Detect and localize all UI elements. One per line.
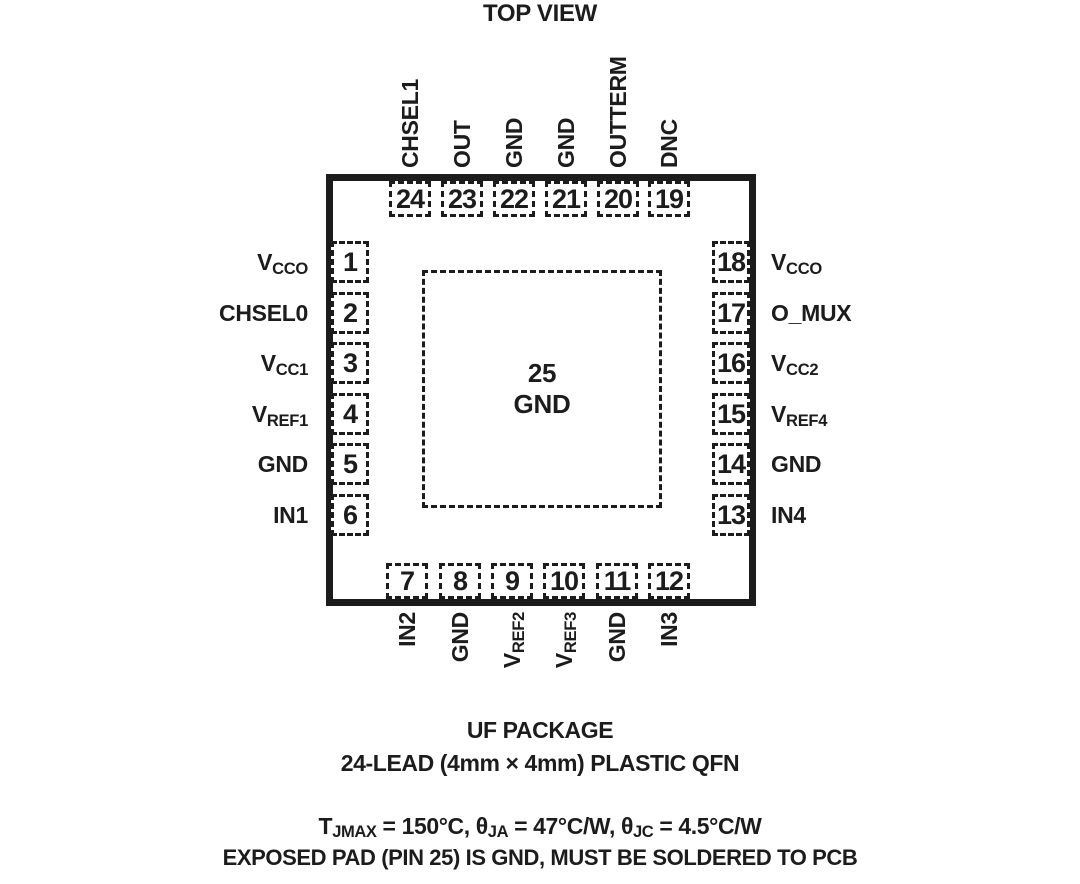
pin-23-box: 23: [441, 181, 483, 217]
pin-16-number: 16: [717, 348, 745, 379]
pin-12-number: 12: [655, 566, 683, 597]
pin-13-number: 13: [717, 500, 745, 531]
pin-22-label: GND: [501, 118, 527, 168]
exposed-pad-note: EXPOSED PAD (PIN 25) IS GND, MUST BE SOL…: [0, 845, 1080, 871]
pin-24-box: 24: [389, 181, 431, 217]
pin-9-box: 9: [491, 563, 533, 599]
pin-8-box: 8: [439, 563, 481, 599]
pin-13-box: 13: [712, 494, 750, 536]
pin-21-box: 21: [545, 181, 587, 217]
pin-24-number: 24: [396, 184, 424, 215]
pin-1-number: 1: [343, 247, 357, 278]
pin-14-box: 14: [712, 443, 750, 485]
top-view-label: TOP VIEW: [0, 0, 1080, 28]
pin-24-label: CHSEL1: [397, 79, 423, 168]
pin-11-number: 11: [604, 566, 631, 597]
pin-5-number: 5: [343, 449, 357, 480]
pin-4-number: 4: [343, 399, 357, 430]
pin-17-label: O_MUX: [771, 300, 851, 326]
package-name: UF PACKAGE: [0, 717, 1080, 744]
exposed-pad-number: 25: [528, 358, 556, 389]
pin-18-box: 18: [712, 241, 750, 283]
pin-20-number: 20: [604, 184, 632, 215]
pin-2-number: 2: [343, 298, 357, 329]
pin-6-label: IN1: [273, 502, 308, 528]
pin-16-label: VCC2: [771, 350, 818, 376]
pin-10-number: 10: [550, 566, 578, 597]
pin-2-label: CHSEL0: [219, 300, 308, 326]
pin-12-box: 12: [648, 563, 690, 599]
pin-12-label: IN3: [656, 612, 682, 647]
pin-4-box: 4: [331, 393, 369, 435]
pin-18-label: VCCO: [771, 249, 822, 275]
pin-6-number: 6: [343, 500, 357, 531]
pin-2-box: 2: [331, 292, 369, 334]
pin-23-number: 23: [448, 184, 476, 215]
pin-10-box: 10: [543, 563, 585, 599]
pin-15-box: 15: [712, 393, 750, 435]
pin-13-label: IN4: [771, 502, 806, 528]
pin-9-label: VREF2: [499, 612, 525, 668]
pin-7-number: 7: [400, 566, 414, 597]
pin-4-label: VREF1: [252, 401, 308, 427]
pin-17-box: 17: [712, 292, 750, 334]
pin-23-label: OUT: [449, 120, 475, 168]
qfn-pinout-diagram: TOP VIEW 25 GND 24 23 22 21 20 19 7 8 9 …: [0, 0, 1080, 884]
pin-6-box: 6: [331, 494, 369, 536]
exposed-pad: 25 GND: [422, 270, 662, 508]
pin-3-box: 3: [331, 342, 369, 384]
pin-11-label: GND: [604, 612, 630, 662]
pin-20-box: 20: [597, 181, 639, 217]
pin-1-box: 1: [331, 241, 369, 283]
pin-1-label: VCCO: [257, 249, 308, 275]
pin-7-box: 7: [386, 563, 428, 599]
pin-21-label: GND: [553, 118, 579, 168]
pin-8-label: GND: [447, 612, 473, 662]
pin-5-label: GND: [258, 451, 308, 477]
pin-15-label: VREF4: [771, 401, 827, 427]
pin-3-label: VCC1: [261, 350, 308, 376]
pin-3-number: 3: [343, 348, 357, 379]
thermal-specs: TJMAX = 150°C, θJA = 47°C/W, θJC = 4.5°C…: [0, 813, 1080, 840]
pin-16-box: 16: [712, 342, 750, 384]
pin-18-number: 18: [717, 247, 745, 278]
pin-5-box: 5: [331, 443, 369, 485]
pin-19-number: 19: [655, 184, 683, 215]
pin-19-box: 19: [648, 181, 690, 217]
pin-22-box: 22: [493, 181, 535, 217]
pin-7-label: IN2: [394, 612, 420, 647]
pin-22-number: 22: [500, 184, 528, 215]
pin-15-number: 15: [717, 399, 745, 430]
package-description: 24-LEAD (4mm × 4mm) PLASTIC QFN: [0, 750, 1080, 777]
pin-11-box: 11: [596, 563, 638, 599]
pin-14-number: 14: [717, 449, 745, 480]
pin-20-label: OUTTERM: [605, 56, 631, 168]
pin-10-label: VREF3: [551, 612, 577, 668]
pin-17-number: 17: [717, 298, 745, 329]
pin-19-label: DNC: [656, 119, 682, 168]
pin-14-label: GND: [771, 451, 821, 477]
pin-8-number: 8: [453, 566, 467, 597]
exposed-pad-label: GND: [514, 389, 571, 420]
pin-9-number: 9: [505, 566, 519, 597]
pin-21-number: 21: [552, 184, 580, 215]
